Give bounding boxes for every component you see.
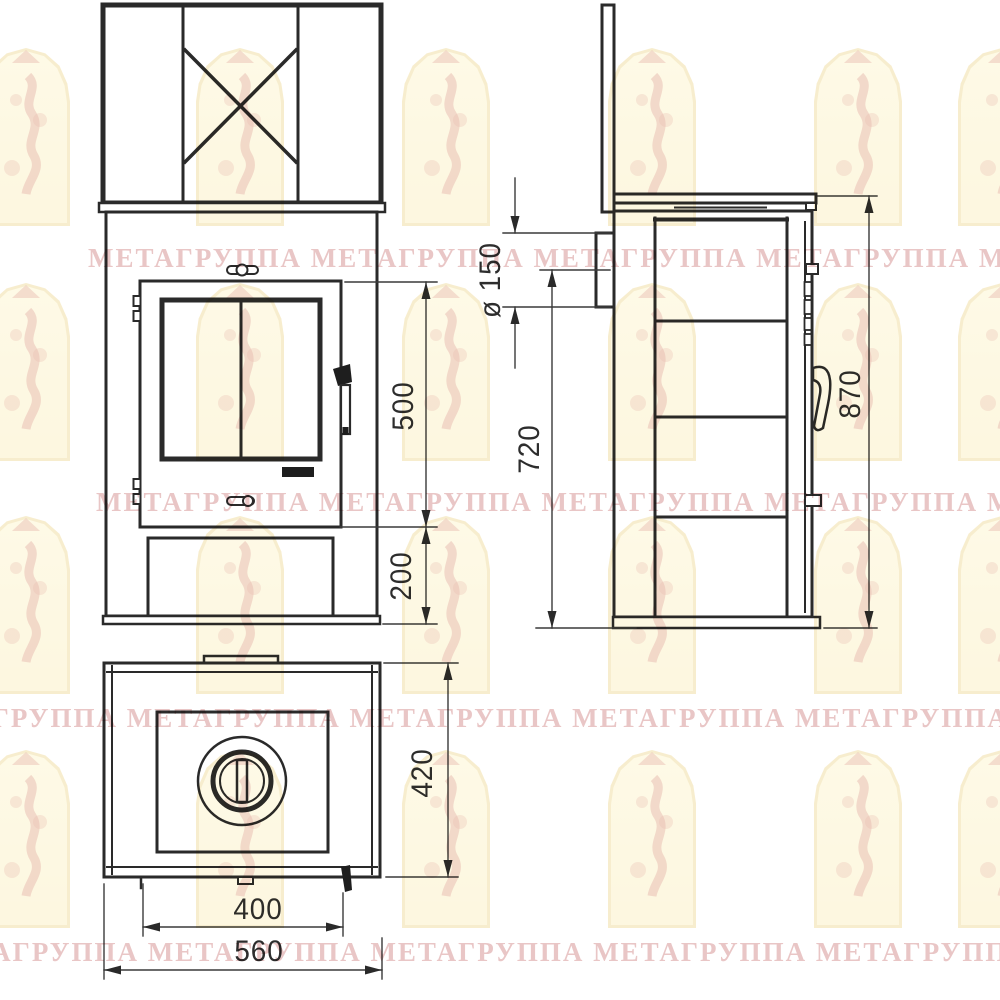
dim-inner-width-label: 400 — [233, 893, 282, 927]
stove-drawing-canvas — [0, 0, 1000, 1000]
side-hinge-strip — [805, 300, 812, 314]
door-hinge-top — [134, 296, 141, 306]
door-hinge-bottom — [134, 479, 141, 489]
dim-flue-diameter-label: ø 150 — [474, 242, 508, 318]
base-plinth-front — [103, 616, 380, 624]
top-latch-knob — [237, 265, 248, 276]
dim-overall-width-label: 560 — [234, 935, 283, 969]
side-door-handle — [813, 367, 830, 430]
base-plinth-side — [613, 617, 820, 628]
top-shelf — [614, 194, 816, 203]
door-handle-bar — [341, 385, 350, 434]
ash-drawer — [148, 538, 333, 616]
air-vent-label — [282, 467, 314, 477]
door-handle-tip — [343, 427, 349, 435]
bottom-latch-knob — [243, 496, 253, 506]
door-hinge-bottom — [134, 494, 141, 504]
side-hinge-strip — [805, 282, 812, 296]
dim-door-height-label: 500 — [387, 381, 421, 430]
stove-technical-drawing: 500 200 ø 150 720 870 420 400 560 МЕТАГР… — [0, 0, 1000, 1000]
heat-shield-panel — [602, 5, 614, 212]
side-bottom-latch — [805, 495, 821, 506]
top-shelf-lip — [806, 203, 816, 210]
dim-depth-label: 420 — [406, 748, 440, 797]
dim-overall-height-label: 870 — [834, 369, 868, 418]
dim-flue-axis-height-label: 720 — [513, 424, 547, 473]
side-top-latch — [806, 264, 818, 274]
damper-handle — [237, 760, 247, 802]
top-view — [104, 656, 380, 892]
side-hinge-strip — [805, 334, 812, 345]
side-body — [614, 211, 812, 617]
side-view — [596, 5, 830, 628]
front-latch-tab — [238, 877, 253, 884]
front-view — [99, 5, 385, 624]
dim-lower-height-label: 200 — [385, 551, 419, 600]
door-hinge-top — [134, 311, 141, 321]
side-hinge-strip — [805, 318, 812, 330]
